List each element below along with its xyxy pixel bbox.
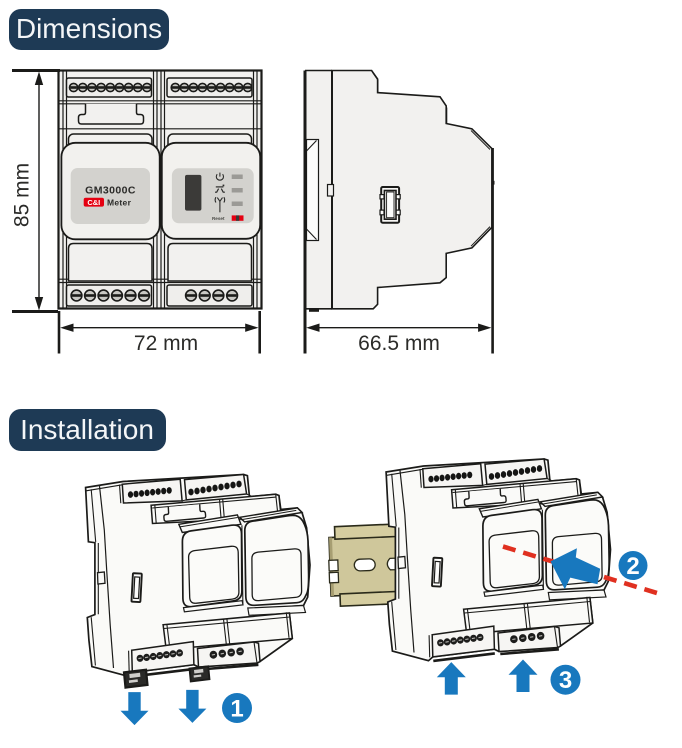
svg-text:GM3000C: GM3000C	[85, 185, 136, 197]
svg-text:Dimensions: Dimensions	[16, 13, 162, 44]
svg-text:66.5 mm: 66.5 mm	[358, 332, 440, 355]
svg-text:72 mm: 72 mm	[134, 332, 198, 355]
svg-text:Meter: Meter	[107, 197, 132, 207]
svg-text:3: 3	[559, 667, 572, 694]
svg-text:Installation: Installation	[20, 414, 154, 445]
svg-text:1: 1	[230, 696, 243, 723]
svg-text:2: 2	[626, 553, 639, 580]
svg-text:Reset: Reset	[212, 216, 225, 221]
svg-text:C&I: C&I	[87, 198, 100, 207]
svg-text:85 mm: 85 mm	[11, 163, 34, 227]
